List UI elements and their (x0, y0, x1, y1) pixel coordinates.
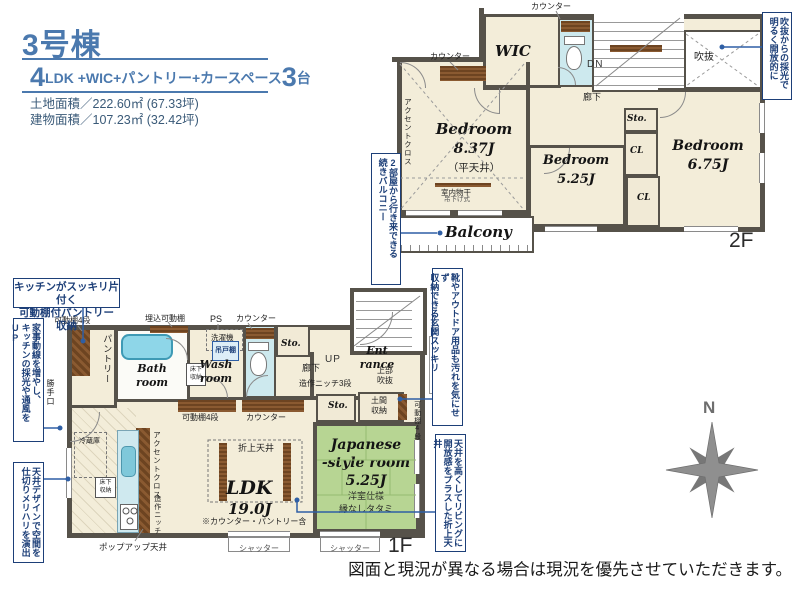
callout-ceiling-design: 天井デザインで空間を 仕切りメリハリを演出 (13, 462, 44, 563)
floorplan-page: 3号棟 4LDK +WIC+パントリー+カースペース3台 土地面積／222.60… (0, 0, 800, 600)
callout-void-light: 吹抜からの採光で 明るく開放的に (762, 12, 792, 100)
disclaimer: 図面と現況が異なる場合は現況を優先させていただきます。 (290, 560, 792, 581)
callout-housework: 家事動線を増やし、 キッチンの採光や通風をUP (13, 318, 44, 442)
callout-coffered-ceiling: 天井を高くしてリビングに 開放感をプラスした折上天井 (435, 434, 466, 552)
callout-balcony: 2部屋から行き来できる 続きバルコニー (371, 153, 401, 285)
callout-pantry: キッチンがスッキリ片付く 可動棚付パントリー収納 (13, 278, 120, 308)
callout-entrance-storage: 靴やアウトドア用品も汚れを気にせず 収納できる玄関スッキリ (432, 268, 463, 426)
compass-north-label: N (703, 397, 715, 418)
